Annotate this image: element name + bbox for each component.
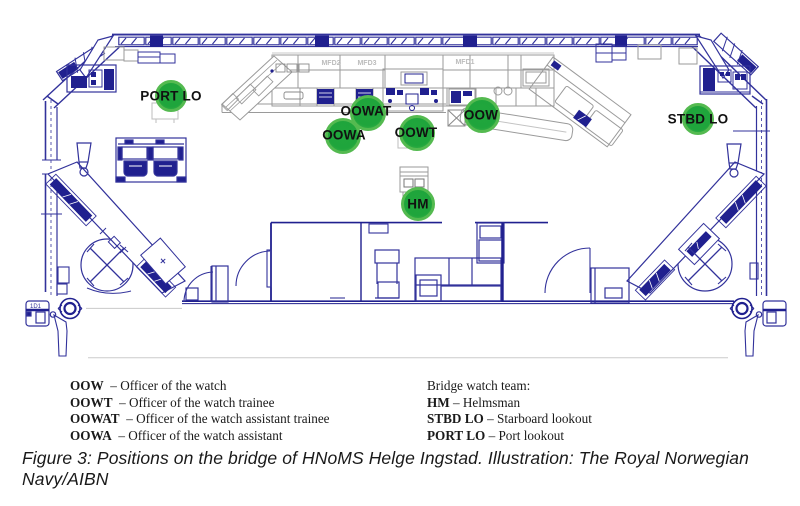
svg-text:STBD LO: STBD LO [668,112,729,127]
svg-text:OOWA: OOWA [322,128,366,143]
svg-text:OOW: OOW [464,108,498,123]
svg-text:1D1: 1D1 [30,304,42,310]
svg-text:PORT LO: PORT LO [140,89,201,104]
svg-text:OOWT: OOWT [395,125,438,140]
svg-text:MFD1: MFD1 [455,59,474,66]
svg-text:MFD3: MFD3 [357,60,376,67]
svg-text:HM: HM [407,197,428,212]
svg-text:MFD2: MFD2 [321,60,340,67]
svg-text:OOWAT: OOWAT [341,104,393,119]
